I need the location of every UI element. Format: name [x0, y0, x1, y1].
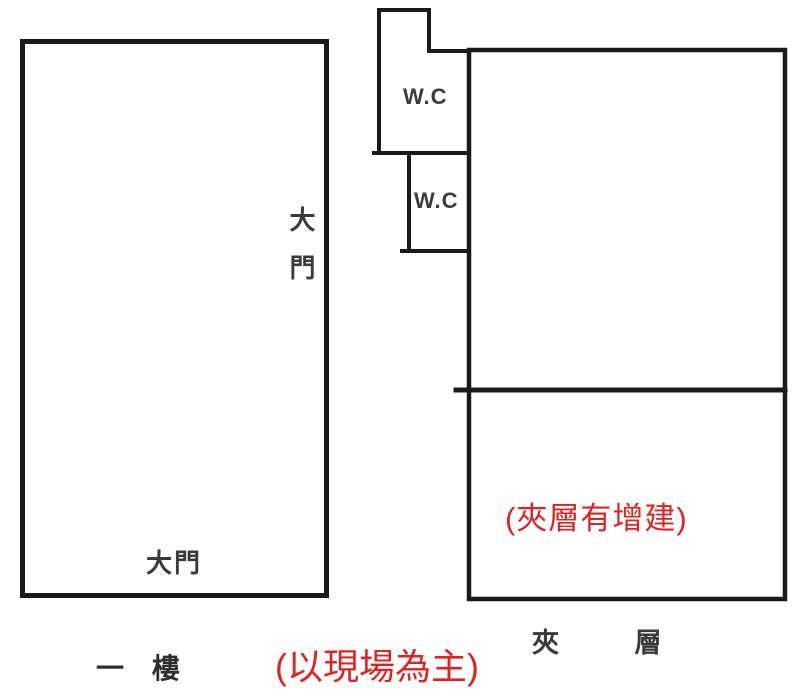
floor-plan-canvas: 大門 大門 W.C W.C (夾層有增建) 一 樓 夾 層 (以現場為主): [0, 0, 800, 700]
site-note: (以現場為主): [275, 649, 479, 685]
mezzanine-annotation: (夾層有增建): [505, 503, 688, 534]
first-floor-bottom-door-label: 大門: [146, 550, 202, 576]
first-floor-outline: [23, 42, 327, 596]
mezzanine-name-label: 夾 層: [532, 630, 662, 657]
wc-upper-label: W.C: [403, 86, 448, 108]
first-floor-name-label: 一 樓: [96, 655, 180, 683]
floor-plan-linework: [0, 0, 800, 700]
first-floor-side-door-label: 大門: [284, 206, 314, 302]
wc-lower-label: W.C: [414, 190, 459, 212]
wc-upper-outline: [374, 10, 467, 153]
